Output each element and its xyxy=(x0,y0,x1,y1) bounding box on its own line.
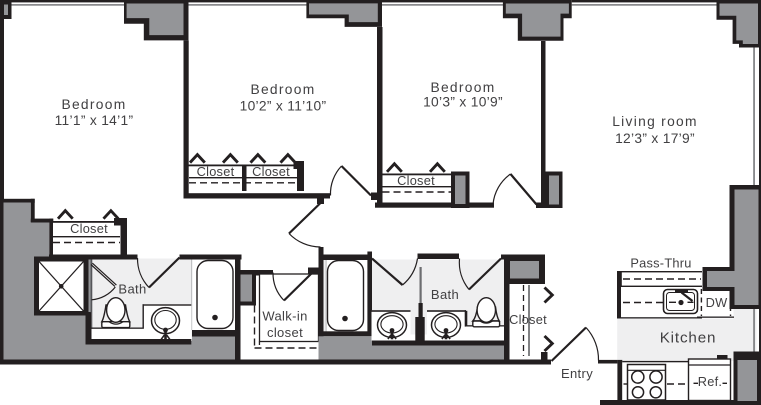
svg-text:Closet: Closet xyxy=(397,173,435,188)
svg-text:10’2” x 11’10”: 10’2” x 11’10” xyxy=(240,99,327,114)
svg-text:closet: closet xyxy=(267,325,303,340)
svg-text:Pass-Thru: Pass-Thru xyxy=(630,256,691,271)
svg-text:11’1” x 14’1”: 11’1” x 14’1” xyxy=(55,113,134,128)
svg-text:Closet: Closet xyxy=(252,164,290,179)
svg-text:Entry: Entry xyxy=(561,366,593,381)
svg-text:Bedroom: Bedroom xyxy=(430,80,495,95)
svg-text:12’3” x 17’9”: 12’3” x 17’9” xyxy=(615,131,695,146)
svg-text:Bath: Bath xyxy=(431,287,459,302)
svg-text:Walk-in: Walk-in xyxy=(262,309,307,324)
svg-text:Closet: Closet xyxy=(509,312,547,327)
svg-text:Bedroom: Bedroom xyxy=(61,97,126,112)
svg-text:Closet: Closet xyxy=(197,164,235,179)
svg-text:DW: DW xyxy=(706,295,728,310)
svg-text:Ref.: Ref. xyxy=(698,374,722,389)
svg-text:Bedroom: Bedroom xyxy=(250,82,315,97)
svg-text:Bath: Bath xyxy=(118,281,146,296)
svg-text:Closet: Closet xyxy=(70,221,108,236)
svg-text:10’3” x 10’9”: 10’3” x 10’9” xyxy=(423,95,503,110)
svg-text:Kitchen: Kitchen xyxy=(660,330,717,347)
svg-text:Living room: Living room xyxy=(612,114,698,129)
